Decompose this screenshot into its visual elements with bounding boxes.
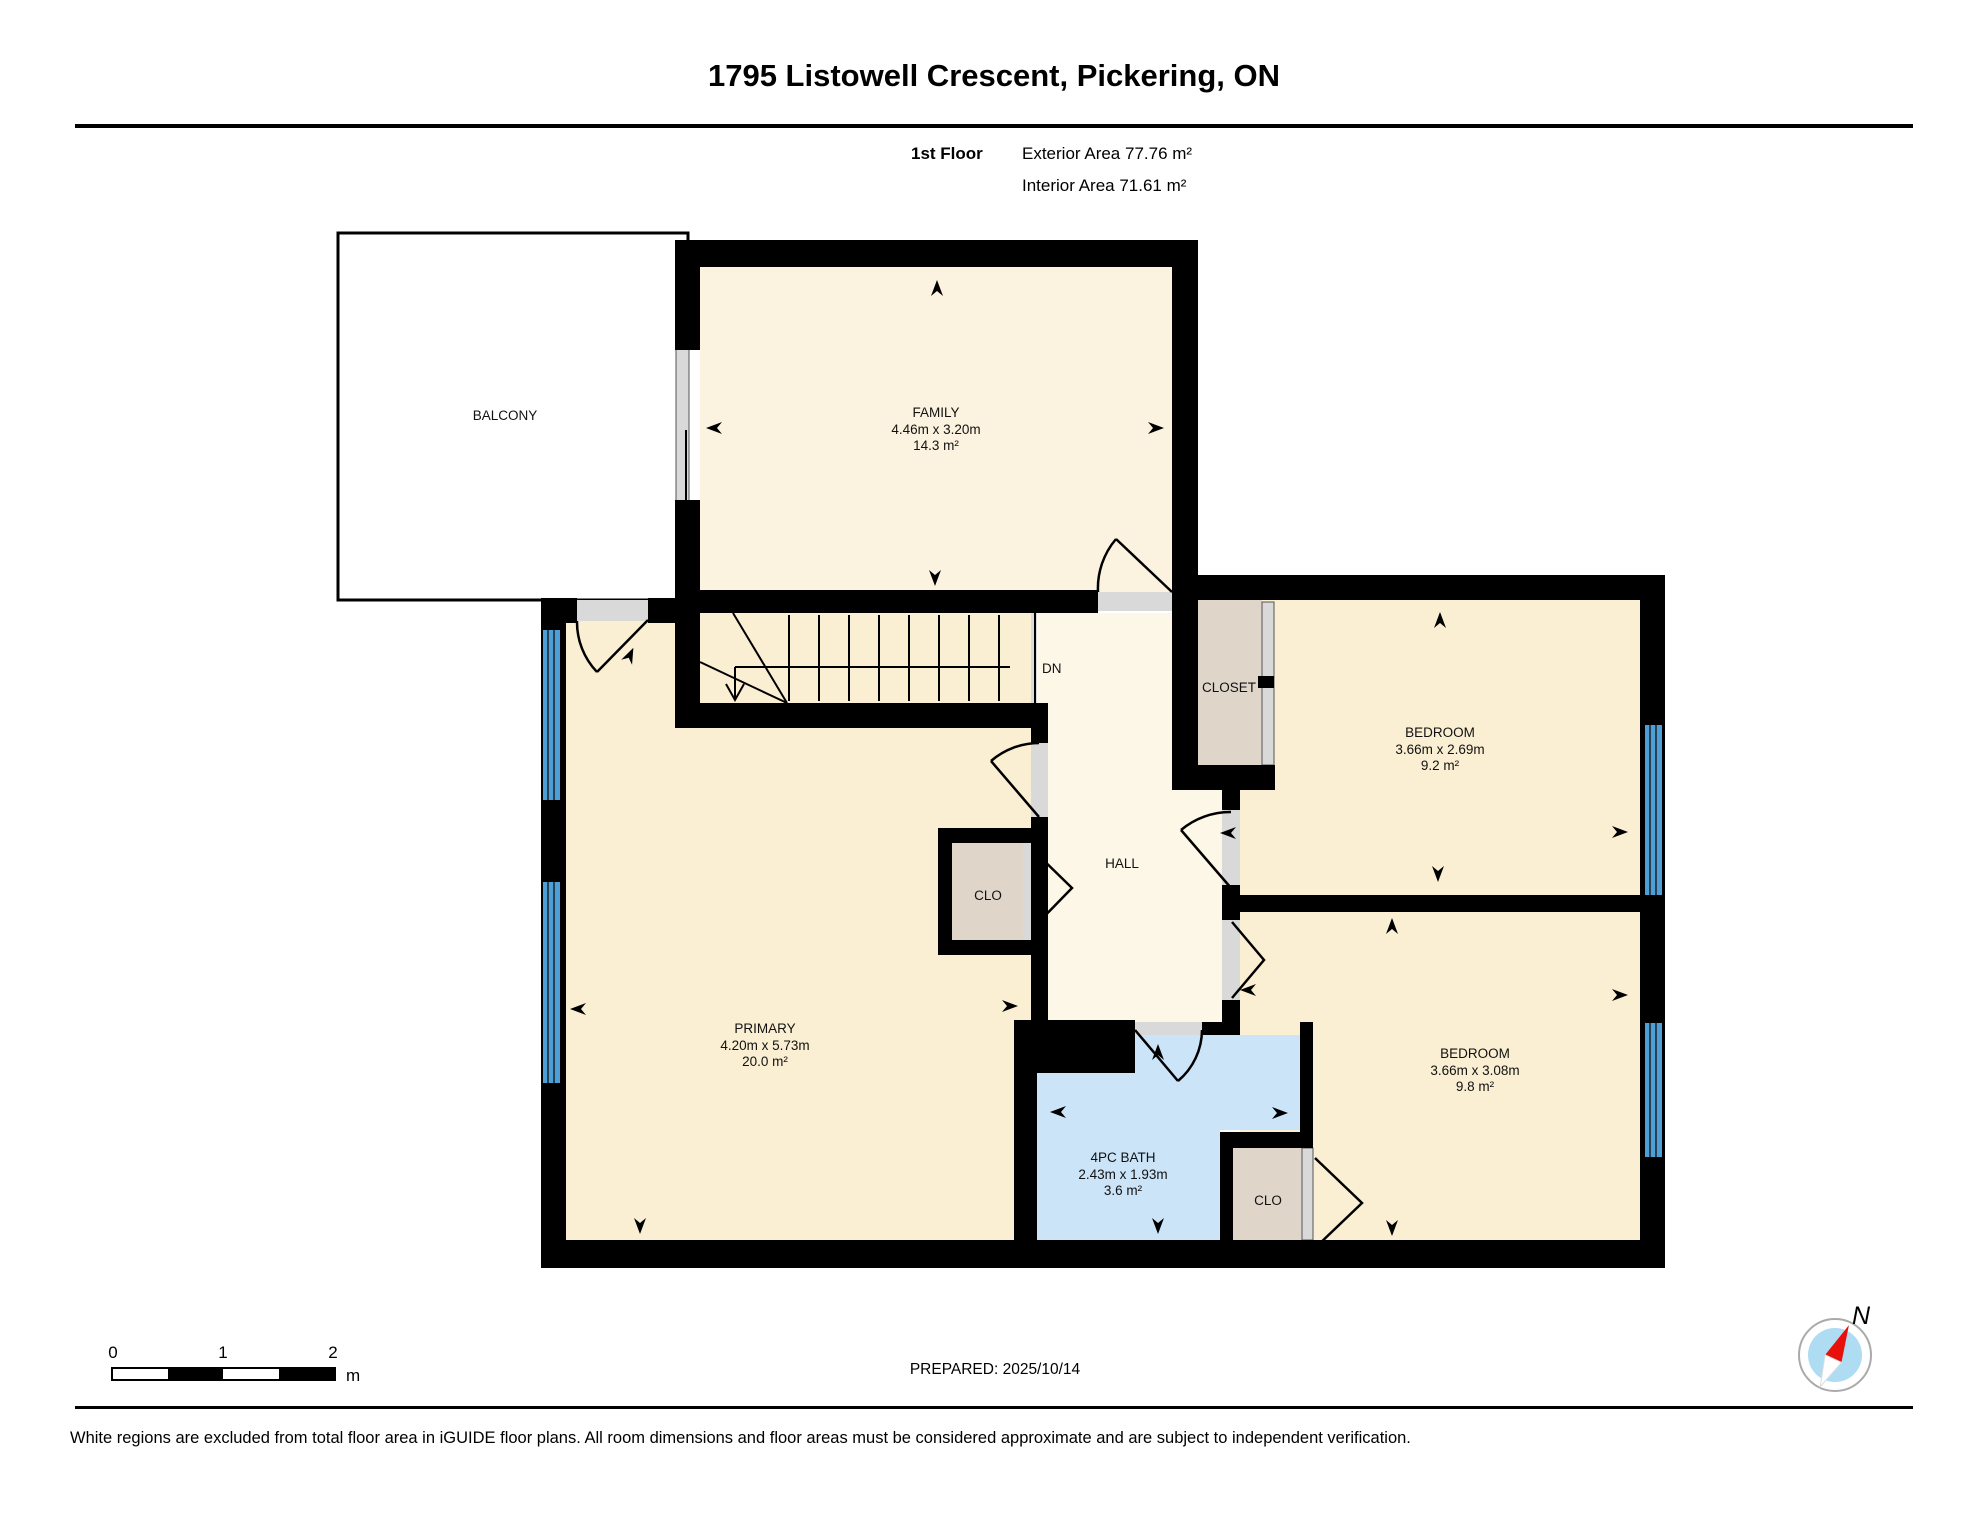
family-door-opening <box>1098 592 1172 611</box>
clo-bedroom-label: CLO <box>1254 1193 1282 1208</box>
window-icon <box>543 630 560 800</box>
scale-bar-segment <box>279 1368 335 1380</box>
scale-bar-segment <box>168 1368 223 1380</box>
room-area: 9.8 m² <box>1456 1079 1495 1094</box>
primary-entry-opening <box>577 600 648 621</box>
scale-tick-1: 1 <box>218 1343 227 1362</box>
floor-plan: 1795 Listowell Crescent, Pickering, ON 1… <box>0 0 1988 1536</box>
balcony-label: BALCONY <box>473 408 538 423</box>
closet-slider-handle <box>1258 676 1274 688</box>
compass-north-label: N <box>1852 1302 1871 1330</box>
window-icon <box>1645 725 1662 895</box>
bath-door-opening <box>1135 1022 1202 1035</box>
scale-tick-0: 0 <box>108 1343 117 1362</box>
compass-icon: N <box>1799 1302 1871 1391</box>
room-area: 14.3 m² <box>913 438 959 453</box>
interior-area: Interior Area 71.61 m² <box>1022 176 1187 195</box>
room-area: 3.6 m² <box>1104 1183 1143 1198</box>
room-dims: 4.20m x 5.73m <box>720 1038 809 1053</box>
room-name: BEDROOM <box>1440 1046 1510 1061</box>
room-name: 4PC BATH <box>1090 1150 1155 1165</box>
room-dims: 4.46m x 3.20m <box>891 422 980 437</box>
bedroom2-door-opening <box>1222 920 1240 1000</box>
room-name: PRIMARY <box>734 1021 795 1036</box>
prepared-date: PREPARED: 2025/10/14 <box>910 1361 1081 1378</box>
window-icon <box>543 882 560 1083</box>
scale-unit: m <box>346 1366 360 1385</box>
hall-primary-opening <box>1031 743 1048 817</box>
window-icon <box>1645 1023 1662 1157</box>
floor-plan-page: 1795 Listowell Crescent, Pickering, ON 1… <box>0 0 1988 1536</box>
room-name: BEDROOM <box>1405 725 1475 740</box>
scale-bar: 0 1 2 m <box>108 1343 360 1385</box>
floor-label: 1st Floor <box>911 144 983 163</box>
closet-label: CLOSET <box>1202 680 1256 695</box>
clo-hall-opening <box>1023 843 1031 940</box>
exterior-area: Exterior Area 77.76 m² <box>1022 144 1192 163</box>
room-dims: 3.66m x 2.69m <box>1395 742 1484 757</box>
page-title: 1795 Listowell Crescent, Pickering, ON <box>708 58 1280 93</box>
room-dims: 3.66m x 3.08m <box>1430 1063 1519 1078</box>
hall-label: HALL <box>1105 856 1139 871</box>
header-divider <box>75 124 1913 128</box>
bedroom1-door-opening <box>1222 810 1240 885</box>
footer-divider <box>75 1406 1913 1409</box>
room-area: 9.2 m² <box>1421 758 1460 773</box>
stairs-dn-label: DN <box>1042 661 1062 676</box>
balcony-slider-door <box>676 347 689 503</box>
scale-tick-2: 2 <box>328 1343 337 1362</box>
room-area: 20.0 m² <box>742 1054 788 1069</box>
room-dims: 2.43m x 1.93m <box>1078 1167 1167 1182</box>
clo-bedroom-opening <box>1302 1148 1313 1240</box>
room-name: FAMILY <box>912 405 959 420</box>
disclaimer-text: White regions are excluded from total fl… <box>70 1429 1411 1447</box>
clo-hall-label: CLO <box>974 888 1002 903</box>
